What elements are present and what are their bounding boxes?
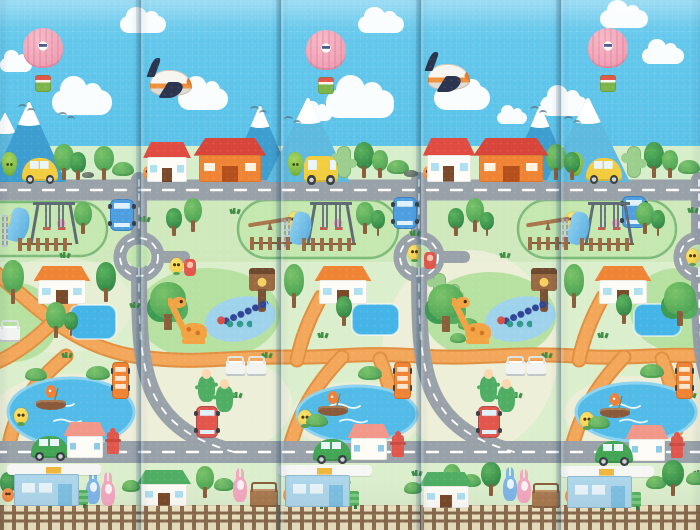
rower (36, 388, 66, 410)
house (422, 472, 470, 508)
bird (284, 116, 293, 123)
bush (588, 416, 610, 429)
bus (394, 362, 411, 399)
house (198, 138, 262, 182)
hydrant (392, 435, 404, 457)
cactus (337, 146, 351, 178)
rabbit (517, 478, 531, 503)
rabbit (503, 476, 517, 501)
car-v (196, 406, 218, 438)
tuft (598, 332, 607, 338)
balloon (588, 28, 628, 92)
swing (588, 202, 630, 243)
bus (112, 362, 129, 399)
tree (564, 152, 580, 180)
tree (96, 262, 116, 302)
house (37, 266, 87, 304)
bird (18, 104, 27, 111)
swing (33, 202, 75, 243)
tree (2, 260, 24, 304)
bird (250, 106, 259, 113)
fold-line (276, 0, 285, 530)
house (140, 470, 188, 506)
van (304, 156, 338, 182)
station (281, 465, 369, 507)
balloon (306, 30, 346, 94)
tree (94, 146, 114, 180)
smiley (686, 249, 699, 264)
giraffe (452, 298, 494, 348)
tree (184, 198, 202, 232)
tree (371, 210, 385, 236)
tree (644, 142, 664, 178)
car-v (393, 197, 417, 229)
fold-line (416, 0, 425, 530)
bush (686, 472, 700, 485)
rabbit (233, 477, 247, 502)
rower (600, 396, 630, 418)
bench-white (247, 361, 266, 376)
giraffe (168, 298, 210, 348)
tree (166, 208, 182, 236)
tree (74, 202, 92, 234)
cloud (326, 90, 394, 118)
tree (70, 152, 86, 180)
hydrant (107, 432, 119, 454)
house (426, 138, 472, 182)
house (66, 422, 104, 458)
bus (676, 362, 693, 399)
tree (662, 460, 684, 496)
rabbit (101, 481, 115, 506)
bush (678, 160, 700, 174)
tree (481, 462, 501, 496)
ducks (226, 320, 252, 328)
plane (428, 64, 470, 90)
smiley (14, 408, 28, 424)
car-v (110, 199, 134, 231)
tree2 (664, 282, 696, 326)
bird (58, 112, 67, 119)
cloud (358, 16, 404, 33)
tuft (688, 207, 697, 213)
tree (354, 142, 374, 178)
kid (216, 386, 233, 412)
redchar (184, 259, 196, 276)
bush (640, 364, 664, 378)
bush (25, 368, 47, 381)
scene-items-layer (0, 0, 700, 530)
redchar (424, 252, 436, 269)
ducks (506, 320, 532, 328)
bench-white (527, 361, 546, 376)
tree (651, 210, 665, 236)
car (31, 436, 69, 458)
tuft (230, 208, 239, 214)
bush (358, 366, 382, 380)
tree (480, 212, 494, 236)
tuft (318, 332, 327, 338)
tree (564, 264, 584, 308)
play-mat-photo (0, 0, 700, 530)
smiley (170, 258, 183, 273)
bush (112, 162, 134, 176)
tree (64, 312, 78, 336)
tree (662, 150, 678, 178)
house (478, 138, 544, 182)
house (350, 424, 388, 460)
bush (214, 478, 234, 491)
tree (46, 302, 66, 338)
fence (18, 238, 72, 251)
station (563, 466, 651, 508)
fold-line (556, 0, 565, 530)
rower (318, 394, 348, 416)
fence (250, 237, 292, 250)
station (10, 464, 98, 506)
bench-white (506, 361, 525, 376)
swing (310, 202, 352, 243)
tree (196, 466, 214, 498)
cloud (642, 48, 684, 64)
cactus (627, 146, 641, 178)
bench-brown (250, 489, 278, 507)
cloud (497, 112, 527, 124)
tuft (500, 252, 509, 258)
tuft (60, 252, 69, 258)
fence (580, 238, 634, 251)
fold-line (136, 0, 145, 530)
bench-white (0, 326, 20, 342)
tree (448, 208, 464, 236)
bird (564, 116, 573, 123)
tree (372, 150, 388, 178)
house (628, 425, 666, 461)
cloud (600, 10, 648, 28)
bush (306, 414, 328, 427)
fence (302, 238, 356, 251)
car (313, 439, 351, 461)
hydrant (671, 436, 683, 458)
tuft (62, 352, 71, 358)
car-v (478, 406, 500, 438)
plane (150, 70, 192, 96)
tree (336, 296, 352, 326)
bird (530, 106, 539, 113)
balloon (23, 28, 63, 92)
bench-white (226, 361, 245, 376)
kid (498, 386, 515, 412)
tree (284, 264, 304, 308)
tree (616, 294, 632, 324)
bush (86, 366, 110, 380)
house (146, 142, 188, 182)
